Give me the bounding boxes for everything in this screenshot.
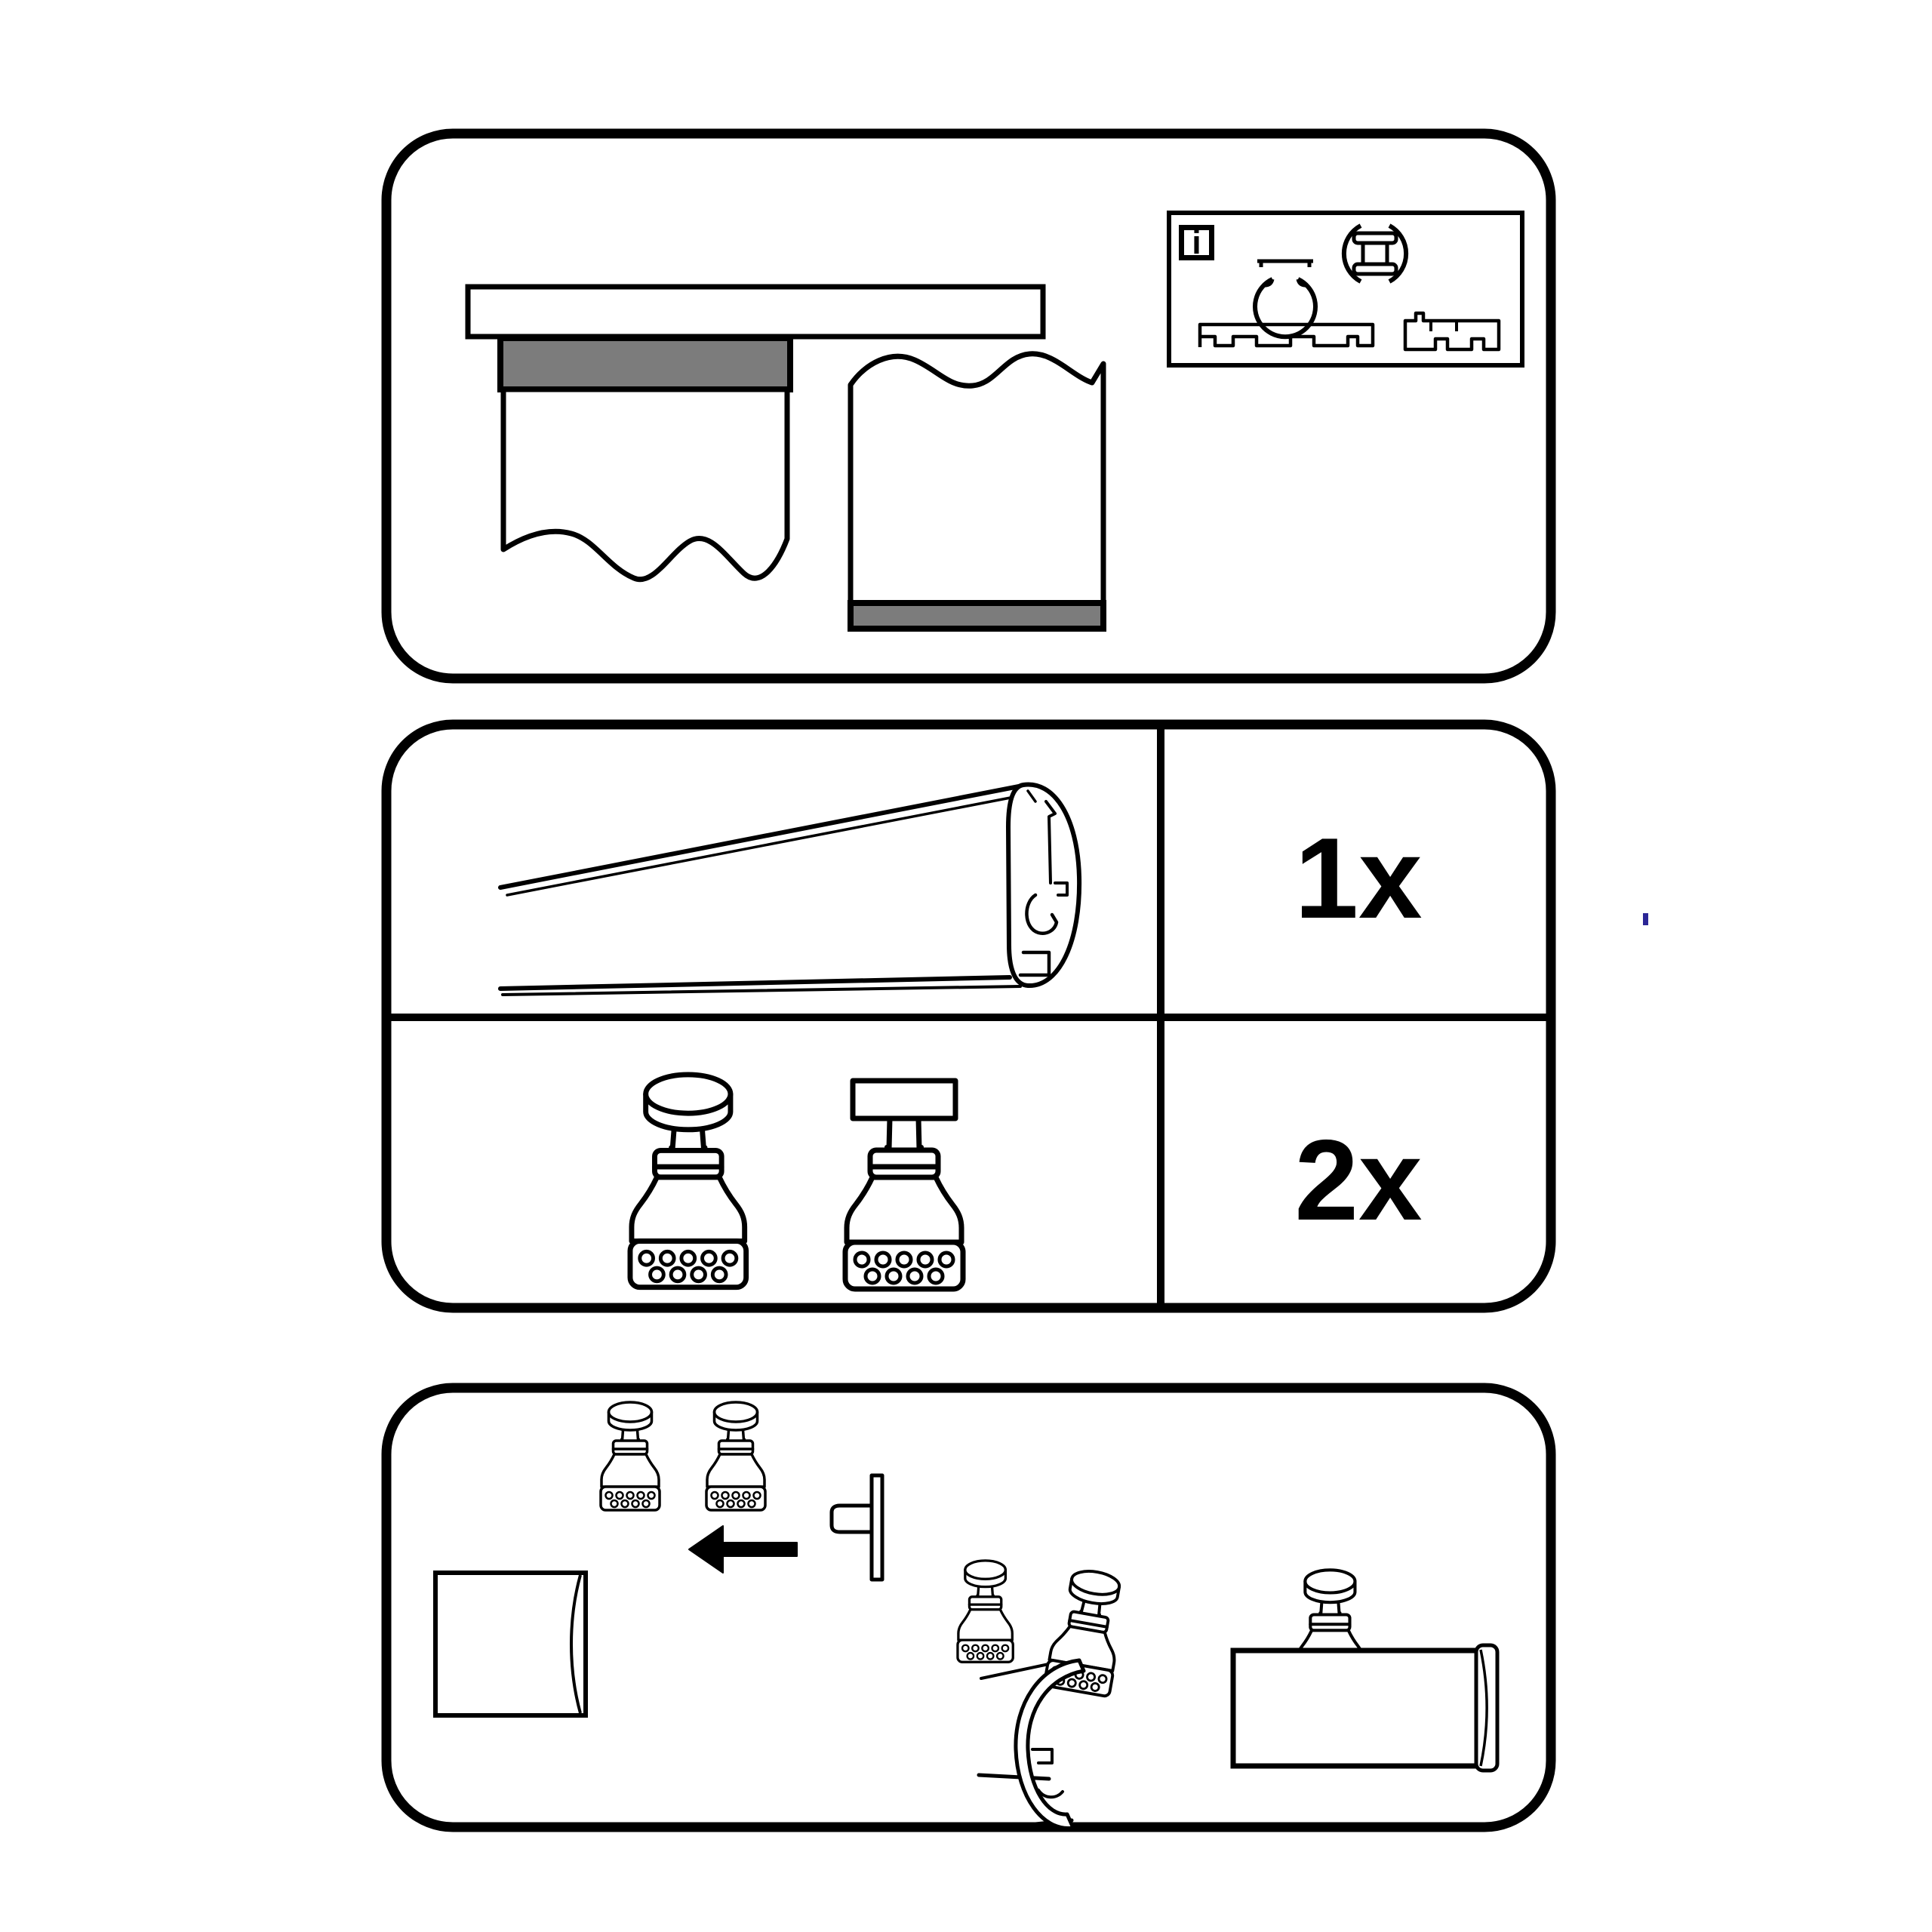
- fabric-panel-with-weight-band: [851, 354, 1103, 629]
- info-box: [1169, 213, 1522, 365]
- rail-side-view: [1233, 1651, 1479, 1766]
- assembly-panel: [381, 1383, 1556, 1832]
- stray-print-mark: [1643, 913, 1648, 925]
- quantity-label-gliders: 2x: [1161, 1123, 1556, 1238]
- instruction-sheet: i 1x 2x: [0, 0, 1932, 1932]
- ceiling-rail-bar: [468, 287, 1043, 337]
- overview-panel: [381, 128, 1556, 684]
- fabric-panel: [435, 1573, 586, 1715]
- info-icon: i: [1179, 225, 1214, 260]
- quantity-label-rail: 1x: [1161, 821, 1556, 936]
